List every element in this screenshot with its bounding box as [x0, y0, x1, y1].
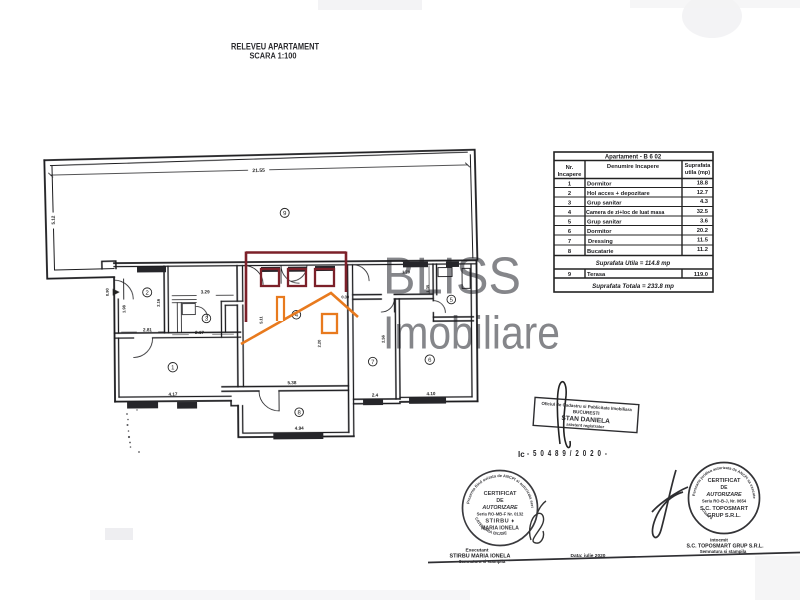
- svg-text:Hol acces + depozitare: Hol acces + depozitare: [587, 191, 650, 197]
- svg-text:32.5: 32.5: [697, 209, 709, 215]
- svg-text:21.55: 21.55: [252, 168, 265, 174]
- svg-text:Persoana juridica autorizata d: Persoana juridica autorizata de ANCPI sa…: [0, 0, 756, 499]
- svg-text:Intocmit: Intocmit: [710, 538, 728, 543]
- svg-text:20.2: 20.2: [697, 228, 708, 234]
- svg-text:utila (mp): utila (mp): [685, 170, 710, 176]
- svg-text:DE: DE: [721, 485, 729, 491]
- svg-text:6: 6: [568, 229, 572, 235]
- svg-text:1.98: 1.98: [121, 304, 126, 313]
- svg-text:Semnatura si stampila: Semnatura si stampila: [700, 549, 747, 554]
- svg-text:2.4: 2.4: [372, 393, 379, 398]
- svg-text:0.30: 0.30: [341, 294, 350, 299]
- svg-text:Seria RO-MB-F Nr. 0132: Seria RO-MB-F Nr. 0132: [477, 512, 524, 517]
- svg-text:3.6: 3.6: [700, 219, 709, 225]
- svg-text:5.38: 5.38: [287, 380, 296, 385]
- svg-text:Terasa: Terasa: [587, 272, 606, 278]
- svg-text:- 5 0 4 8 9 / 2 0 2 0 -: - 5 0 4 8 9 / 2 0 2 0 -: [527, 448, 608, 458]
- svg-text:Dormitor: Dormitor: [587, 229, 612, 235]
- svg-text:Incapere: Incapere: [558, 172, 583, 178]
- svg-text:18.8: 18.8: [697, 181, 709, 187]
- svg-text:Suprafata Utila = 114.8 mp: Suprafata Utila = 114.8 mp: [596, 261, 671, 267]
- svg-text:Denumire Incapere: Denumire Incapere: [607, 164, 660, 170]
- svg-text:11.2: 11.2: [697, 247, 708, 253]
- svg-text:Grup sanitar: Grup sanitar: [587, 201, 622, 207]
- svg-text:Grup sanitar: Grup sanitar: [587, 220, 622, 226]
- svg-text:7: 7: [371, 360, 375, 366]
- svg-text:9: 9: [283, 211, 287, 217]
- svg-text:2: 2: [146, 291, 150, 297]
- svg-text:1.79: 1.79: [402, 269, 411, 274]
- svg-text:2.17: 2.17: [195, 330, 204, 335]
- svg-text:9: 9: [568, 272, 572, 278]
- svg-text:3: 3: [568, 201, 572, 207]
- svg-text:CERTIFICAT: CERTIFICAT: [708, 478, 741, 484]
- svg-text:Apartament - B 6 02: Apartament - B 6 02: [605, 155, 662, 161]
- svg-text:5.11: 5.11: [258, 315, 263, 323]
- svg-text:5.12: 5.12: [51, 215, 56, 225]
- svg-text:7: 7: [568, 239, 571, 245]
- svg-text:3.29: 3.29: [201, 289, 210, 294]
- svg-text:Seria RO-B-J, Nr. 0654: Seria RO-B-J, Nr. 0654: [702, 499, 747, 504]
- svg-text:4.10: 4.10: [427, 391, 436, 396]
- svg-text:2.20: 2.20: [317, 339, 322, 348]
- svg-text:8: 8: [297, 410, 301, 416]
- svg-text:MARIA IONELA: MARIA IONELA: [481, 526, 519, 532]
- svg-text:AUTORIZARE: AUTORIZARE: [481, 505, 518, 511]
- svg-text:12.7: 12.7: [697, 190, 708, 196]
- svg-text:STIRBU ♦: STIRBU ♦: [485, 519, 514, 525]
- svg-text:1: 1: [568, 182, 572, 188]
- svg-text:11.5: 11.5: [697, 238, 709, 244]
- svg-text:Bucatarie: Bucatarie: [587, 249, 614, 255]
- svg-text:5: 5: [568, 220, 572, 226]
- svg-text:Nr.: Nr.: [566, 165, 574, 171]
- svg-text:CERTIFICAT: CERTIFICAT: [484, 491, 517, 497]
- svg-text:SCARA 1:100: SCARA 1:100: [250, 51, 297, 61]
- svg-text:Camera de zi+loc de luat masa: Camera de zi+loc de luat masa: [586, 210, 665, 216]
- svg-text:GRUP S.R.L.: GRUP S.R.L.: [707, 513, 741, 519]
- svg-text:4: 4: [568, 210, 572, 216]
- svg-text:Dressing: Dressing: [588, 239, 613, 245]
- svg-text:2: 2: [568, 191, 571, 197]
- svg-text:119.0: 119.0: [694, 272, 708, 278]
- svg-text:lc: lc: [518, 450, 525, 459]
- svg-text:2.16: 2.16: [156, 298, 161, 307]
- svg-text:S.C. TOPOSMART: S.C. TOPOSMART: [700, 506, 749, 512]
- svg-text:1.35: 1.35: [425, 284, 430, 293]
- svg-text:0.90: 0.90: [105, 288, 110, 297]
- svg-text:2.81: 2.81: [143, 327, 152, 332]
- svg-text:Suprafata: Suprafata: [685, 163, 712, 169]
- svg-text:4.94: 4.94: [295, 426, 304, 431]
- svg-text:3: 3: [205, 317, 209, 323]
- svg-text:Dormitor: Dormitor: [587, 182, 612, 188]
- svg-text:6: 6: [428, 358, 432, 364]
- svg-text:8: 8: [568, 249, 572, 255]
- svg-text:DE: DE: [496, 498, 504, 504]
- svg-text:4.3: 4.3: [700, 199, 709, 205]
- svg-text:AUTORIZARE: AUTORIZARE: [705, 492, 742, 498]
- svg-text:4.17: 4.17: [169, 392, 178, 397]
- svg-text:1: 1: [171, 365, 175, 371]
- svg-text:Suprafata Totala = 233.8 mp: Suprafata Totala = 233.8 mp: [592, 283, 674, 290]
- svg-text:2.56: 2.56: [381, 334, 386, 343]
